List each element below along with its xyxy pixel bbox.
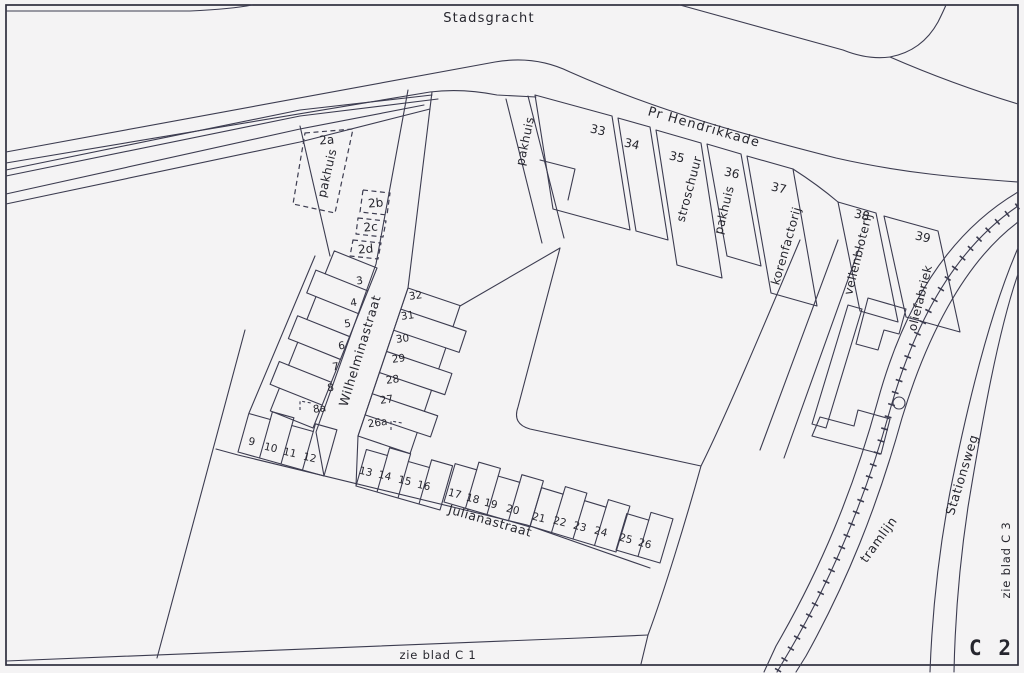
road-junction-top-right — [680, 5, 946, 58]
parcel-number: 33 — [589, 122, 607, 139]
building-label-vellenbloterij: vellenbloterij — [841, 212, 875, 297]
factory-building-upper — [856, 298, 906, 350]
house-number: 26 — [637, 537, 653, 552]
south-sheet-boundary — [6, 635, 648, 661]
house-number: 13 — [358, 465, 374, 480]
canal-line-5 — [6, 105, 424, 194]
factory-building-lower — [812, 410, 890, 454]
parcel-number: 37 — [770, 180, 788, 197]
building-label-korenfactorij: korenfactorij — [768, 205, 804, 286]
dashed-corner-8a — [300, 401, 311, 410]
canal-line-4 — [6, 99, 438, 176]
house-number: 27 — [379, 393, 394, 407]
house-number: 10 — [263, 441, 279, 456]
building-label-stroschuur: stroschuur — [674, 155, 705, 224]
parcel-number: 39 — [914, 229, 932, 246]
house-number: 19 — [483, 497, 499, 512]
house-number: 3 — [355, 275, 363, 288]
parcel-number: 2a — [319, 133, 335, 148]
house-number: 30 — [395, 332, 410, 346]
house-number: 7 — [331, 361, 339, 374]
house-number: 32 — [408, 289, 423, 303]
chimney-symbol — [893, 397, 905, 409]
street-label-stadsgracht: Stadsgracht — [443, 11, 535, 26]
house-divider — [298, 342, 341, 359]
building-label-oliefabriek: oliefabriek — [905, 264, 935, 333]
house-number: 31 — [400, 309, 415, 323]
house-number: 29 — [391, 352, 406, 366]
reference-label-east: zie blad C 3 — [999, 521, 1013, 598]
house-number: 20 — [505, 503, 521, 518]
parcel-number: 2d — [357, 241, 373, 256]
house-number: 9 — [247, 435, 256, 448]
house-number: 8a — [312, 402, 327, 416]
backlot-line-east — [460, 248, 560, 306]
house-number: 22 — [552, 515, 568, 530]
road-pr-hendrikkade-south-edge — [6, 91, 536, 163]
parcel-numbers: 2a2b2c2d33343536373839 — [319, 122, 932, 257]
canal-bank-top — [6, 5, 252, 11]
rail-line-3 — [796, 222, 1018, 672]
map-frame — [6, 5, 1018, 665]
house-number: 23 — [572, 520, 588, 535]
reference-label-south: zie blad C 1 — [399, 648, 476, 662]
label-tramlijn: tramlijn — [857, 513, 900, 565]
parcel-number: 2b — [367, 195, 383, 210]
street-label-pr-hendrikkade: Pr Hendrikkade — [646, 104, 762, 150]
house-number: 16 — [416, 479, 432, 494]
parcel-boundary-southeast — [641, 240, 800, 664]
house-number: 26a — [367, 416, 388, 431]
parcel-boundary-southwest — [157, 330, 245, 658]
house-number: 25 — [618, 532, 634, 547]
house-number: 4 — [349, 297, 358, 310]
parcel-number: 36 — [723, 165, 741, 182]
rail-line-1 — [764, 192, 1018, 672]
house-number: 11 — [282, 446, 298, 461]
parcel-number: 35 — [668, 149, 686, 166]
parcel-number: 34 — [623, 136, 641, 153]
cadastral-map-sheet: 3456788a32313029282726a91011121314151617… — [0, 0, 1024, 673]
road-branch-top-right — [890, 57, 1018, 104]
house-number: 6 — [337, 340, 346, 353]
house-number: 15 — [397, 474, 413, 489]
house-number: 28 — [385, 373, 400, 387]
building-label-pakhuis-2a: pakhuis — [315, 147, 340, 198]
house-number: 5 — [343, 318, 351, 331]
house-number: 21 — [531, 511, 547, 526]
house-divider — [289, 365, 332, 382]
factory-building-narrow — [812, 305, 862, 428]
parcel-number: 2c — [363, 219, 378, 234]
house-number: 17 — [447, 487, 463, 502]
parcel-36-outline — [707, 144, 761, 266]
map-canvas: 3456788a32313029282726a91011121314151617… — [0, 0, 1024, 673]
sheet-code: C 2 — [969, 636, 1013, 660]
house-number: 14 — [377, 469, 393, 484]
central-parcel-boundary — [517, 248, 702, 466]
street-label-stationsweg: Stationsweg — [942, 433, 981, 517]
road-edge-37-38 — [793, 169, 838, 202]
house-number: 24 — [593, 525, 609, 540]
